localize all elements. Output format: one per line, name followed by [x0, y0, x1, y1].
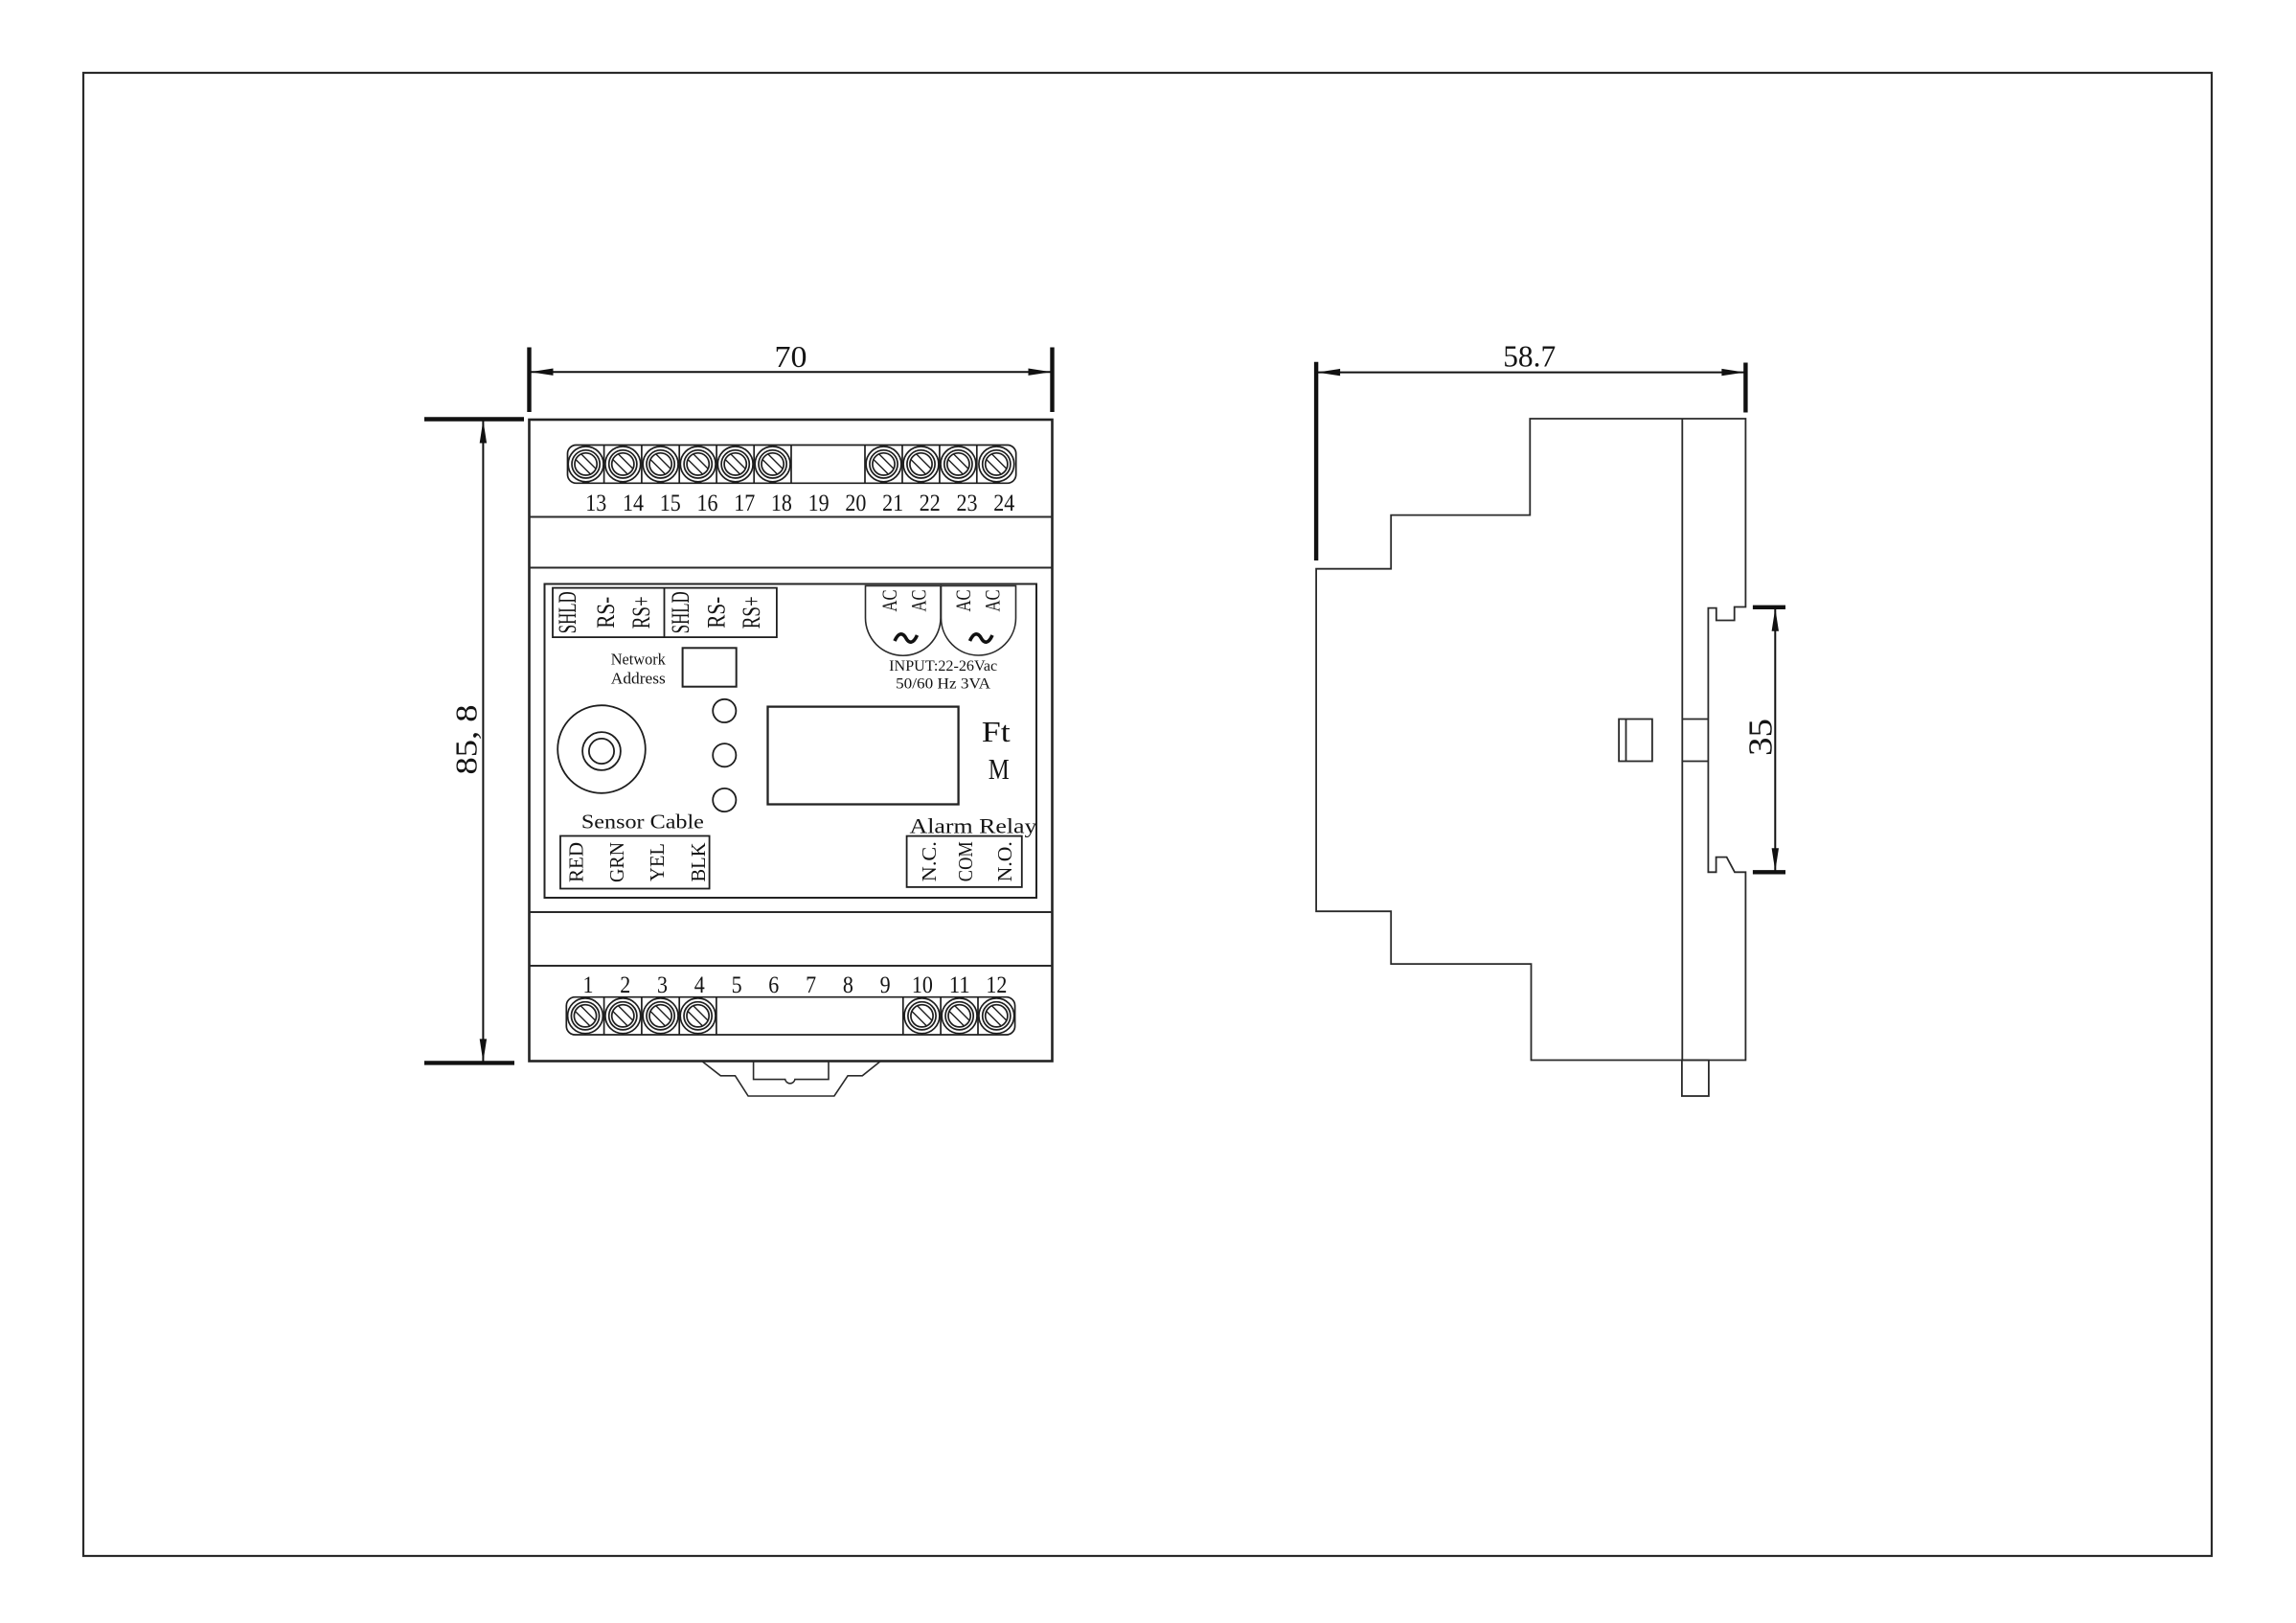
svg-text:10: 10 — [912, 972, 933, 998]
svg-text:N.C.: N.C. — [918, 841, 941, 881]
svg-text:70: 70 — [775, 339, 807, 374]
svg-text:15: 15 — [660, 491, 681, 516]
svg-text:COM: COM — [954, 841, 977, 881]
svg-text:24: 24 — [993, 491, 1014, 516]
svg-text:GRN: GRN — [605, 842, 628, 882]
svg-text:18: 18 — [771, 491, 792, 516]
svg-text:5: 5 — [732, 972, 742, 998]
svg-text:Address: Address — [611, 670, 666, 688]
svg-text:1: 1 — [583, 972, 594, 998]
svg-text:16: 16 — [697, 491, 718, 516]
svg-text:13: 13 — [585, 491, 606, 516]
svg-text:AC: AC — [981, 590, 1005, 612]
svg-text:21: 21 — [882, 491, 903, 516]
svg-text:23: 23 — [957, 491, 978, 516]
svg-text:12: 12 — [986, 972, 1007, 998]
svg-text:N.O.: N.O. — [993, 841, 1016, 881]
svg-text:RS+: RS+ — [627, 596, 655, 629]
svg-text:AC: AC — [951, 590, 975, 612]
svg-text:58.7: 58.7 — [1503, 339, 1556, 374]
svg-text:RED: RED — [565, 842, 588, 882]
svg-text:8: 8 — [843, 972, 853, 998]
svg-text:SHLD: SHLD — [554, 591, 581, 633]
svg-text:RS+: RS+ — [738, 596, 765, 629]
svg-text:19: 19 — [808, 491, 830, 516]
svg-text:INPUT:22-26Vac: INPUT:22-26Vac — [889, 658, 997, 674]
svg-text:2: 2 — [620, 972, 630, 998]
svg-text:AC: AC — [907, 590, 931, 612]
svg-text:SHLD: SHLD — [667, 591, 694, 633]
svg-text:Ft: Ft — [982, 715, 1011, 748]
svg-text:14: 14 — [623, 491, 644, 516]
svg-text:M: M — [989, 752, 1010, 786]
svg-text:Network: Network — [611, 651, 667, 669]
svg-text:7: 7 — [806, 972, 816, 998]
svg-text:RS-: RS- — [702, 597, 730, 629]
svg-text:9: 9 — [880, 972, 891, 998]
svg-text:11: 11 — [949, 972, 970, 998]
svg-text:3: 3 — [657, 972, 668, 998]
svg-text:20: 20 — [845, 491, 866, 516]
svg-text:Alarm Relay: Alarm Relay — [910, 814, 1037, 838]
svg-text:RS-: RS- — [592, 597, 620, 629]
svg-text:AC: AC — [877, 590, 901, 612]
svg-text:85, 8: 85, 8 — [449, 705, 484, 775]
svg-text:22: 22 — [920, 491, 941, 516]
svg-text:6: 6 — [768, 972, 779, 998]
svg-text:50/60 Hz 3VA: 50/60 Hz 3VA — [896, 676, 991, 693]
svg-text:4: 4 — [694, 972, 705, 998]
svg-text:17: 17 — [734, 491, 755, 516]
svg-text:35: 35 — [1742, 719, 1780, 756]
svg-text:Sensor Cable: Sensor Cable — [581, 810, 704, 833]
svg-text:YEL: YEL — [646, 843, 669, 881]
svg-text:BLK: BLK — [687, 843, 710, 882]
